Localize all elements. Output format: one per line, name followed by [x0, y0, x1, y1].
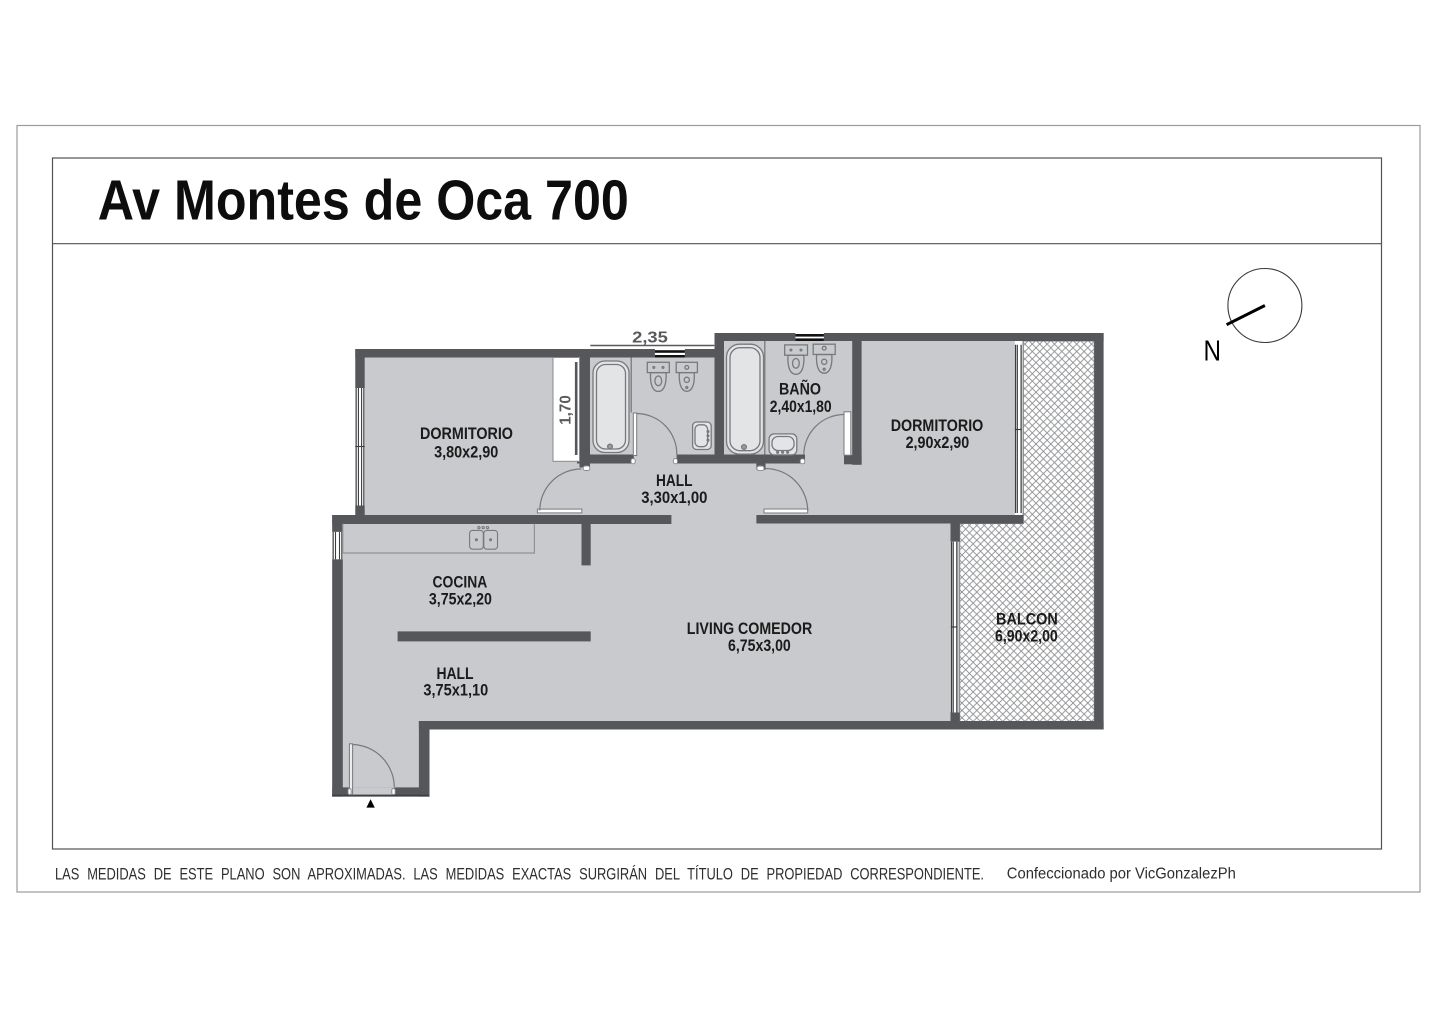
svg-text:N: N [1203, 335, 1221, 367]
svg-text:HALL: HALL [656, 472, 693, 490]
svg-text:HALL: HALL [436, 665, 473, 683]
svg-text:BAÑO: BAÑO [779, 379, 821, 399]
svg-text:6,90x2,00: 6,90x2,00 [995, 628, 1058, 646]
svg-text:1,70: 1,70 [558, 395, 575, 425]
svg-text:3,30x1,00: 3,30x1,00 [641, 489, 707, 507]
svg-text:2,40x1,80: 2,40x1,80 [770, 398, 832, 416]
svg-text:2,90x2,90: 2,90x2,90 [906, 434, 970, 452]
svg-text:COCINA: COCINA [433, 573, 488, 591]
svg-text:3,75x2,20: 3,75x2,20 [429, 590, 492, 608]
svg-text:Confeccionado por VicGonzalezP: Confeccionado por VicGonzalezPh [1007, 866, 1236, 883]
svg-text:Av Montes de Oca 700: Av Montes de Oca 700 [98, 168, 629, 231]
svg-text:3,80x2,90: 3,80x2,90 [434, 443, 498, 461]
svg-text:LIVING COMEDOR: LIVING COMEDOR [687, 620, 813, 638]
svg-text:2,35: 2,35 [632, 329, 668, 346]
svg-text:BALCON: BALCON [996, 611, 1058, 629]
svg-text:DORMITORIO: DORMITORIO [891, 417, 984, 435]
svg-text:3,75x1,10: 3,75x1,10 [423, 681, 488, 699]
svg-text:DORMITORIO: DORMITORIO [420, 425, 513, 443]
svg-text:LAS MEDIDAS DE ESTE PLANO SON: LAS MEDIDAS DE ESTE PLANO SON APROXIMADA… [55, 864, 984, 883]
svg-text:6,75x3,00: 6,75x3,00 [728, 637, 791, 655]
